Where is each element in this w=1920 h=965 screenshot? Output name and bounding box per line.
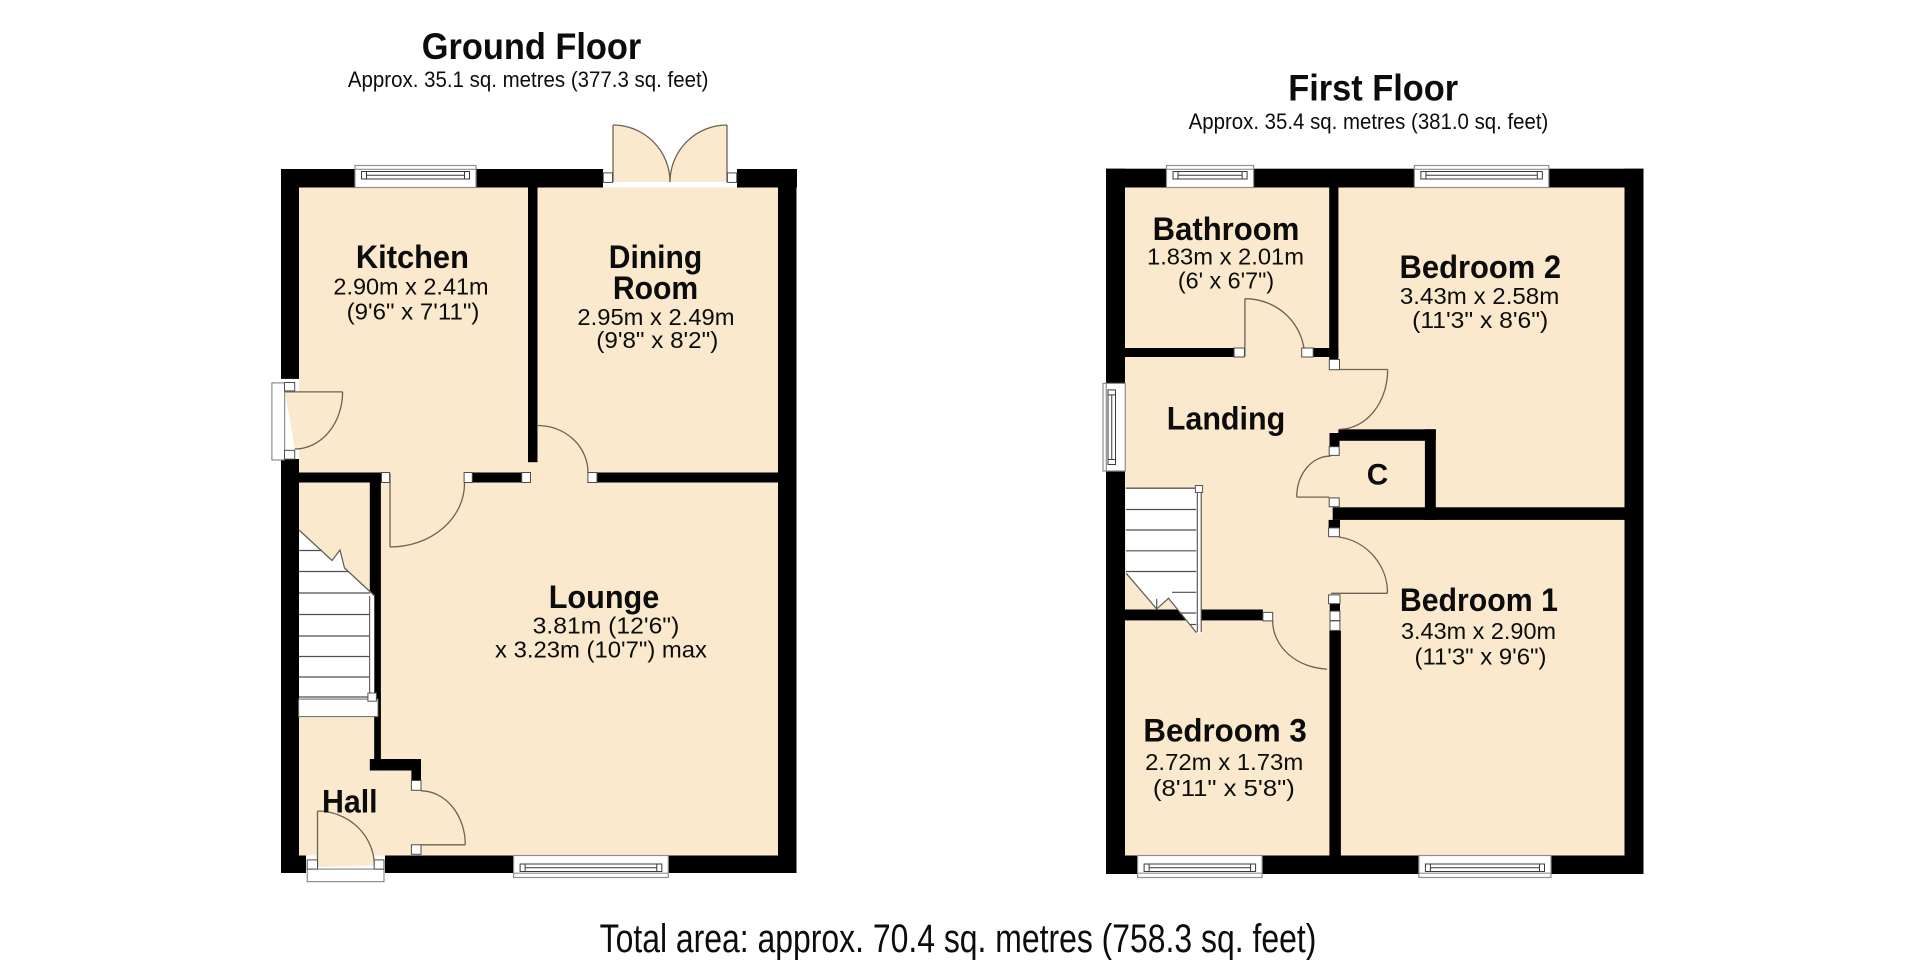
svg-text:(6' x 6'7"): (6' x 6'7") xyxy=(1178,267,1274,293)
svg-text:3.43m x 2.58m: 3.43m x 2.58m xyxy=(1400,283,1559,309)
svg-text:2.90m x 2.41m: 2.90m x 2.41m xyxy=(333,274,488,300)
svg-text:(11'3" x 9'6"): (11'3" x 9'6") xyxy=(1415,644,1547,670)
svg-text:(11'3" x 8'6"): (11'3" x 8'6") xyxy=(1412,307,1548,333)
svg-text:Bathroom: Bathroom xyxy=(1153,211,1300,247)
svg-text:2.72m x 1.73m: 2.72m x 1.73m xyxy=(1145,749,1303,775)
svg-text:Ground Floor: Ground Floor xyxy=(422,25,642,67)
svg-text:Bedroom 1: Bedroom 1 xyxy=(1400,582,1558,618)
svg-text:Room: Room xyxy=(613,270,698,306)
svg-text:Approx. 35.1 sq. metres (377.3: Approx. 35.1 sq. metres (377.3 sq. feet) xyxy=(348,67,709,92)
svg-text:x 3.23m (10'7") max: x 3.23m (10'7") max xyxy=(495,636,707,662)
svg-text:(9'6" x 7'11"): (9'6" x 7'11") xyxy=(347,299,480,325)
svg-text:First Floor: First Floor xyxy=(1288,66,1458,108)
svg-text:1.83m x 2.01m: 1.83m x 2.01m xyxy=(1147,243,1304,269)
svg-text:Hall: Hall xyxy=(322,784,378,820)
svg-text:Landing: Landing xyxy=(1167,401,1286,437)
svg-text:3.43m x 2.90m: 3.43m x 2.90m xyxy=(1401,618,1556,644)
svg-text:Bedroom 3: Bedroom 3 xyxy=(1143,713,1306,749)
svg-text:(9'8" x 8'2"): (9'8" x 8'2") xyxy=(596,327,718,353)
svg-text:Lounge: Lounge xyxy=(549,579,660,615)
svg-text:Bedroom 2: Bedroom 2 xyxy=(1400,249,1562,285)
svg-text:Total area: approx. 70.4 sq. m: Total area: approx. 70.4 sq. metres (758… xyxy=(600,917,1317,960)
svg-text:C: C xyxy=(1367,459,1389,492)
svg-text:Approx. 35.4 sq. metres (381.0: Approx. 35.4 sq. metres (381.0 sq. feet) xyxy=(1189,109,1549,134)
svg-text:Kitchen: Kitchen xyxy=(356,239,469,275)
svg-text:3.81m (12'6"): 3.81m (12'6") xyxy=(533,613,680,639)
svg-text:(8'11" x 5'8"): (8'11" x 5'8") xyxy=(1153,775,1295,801)
